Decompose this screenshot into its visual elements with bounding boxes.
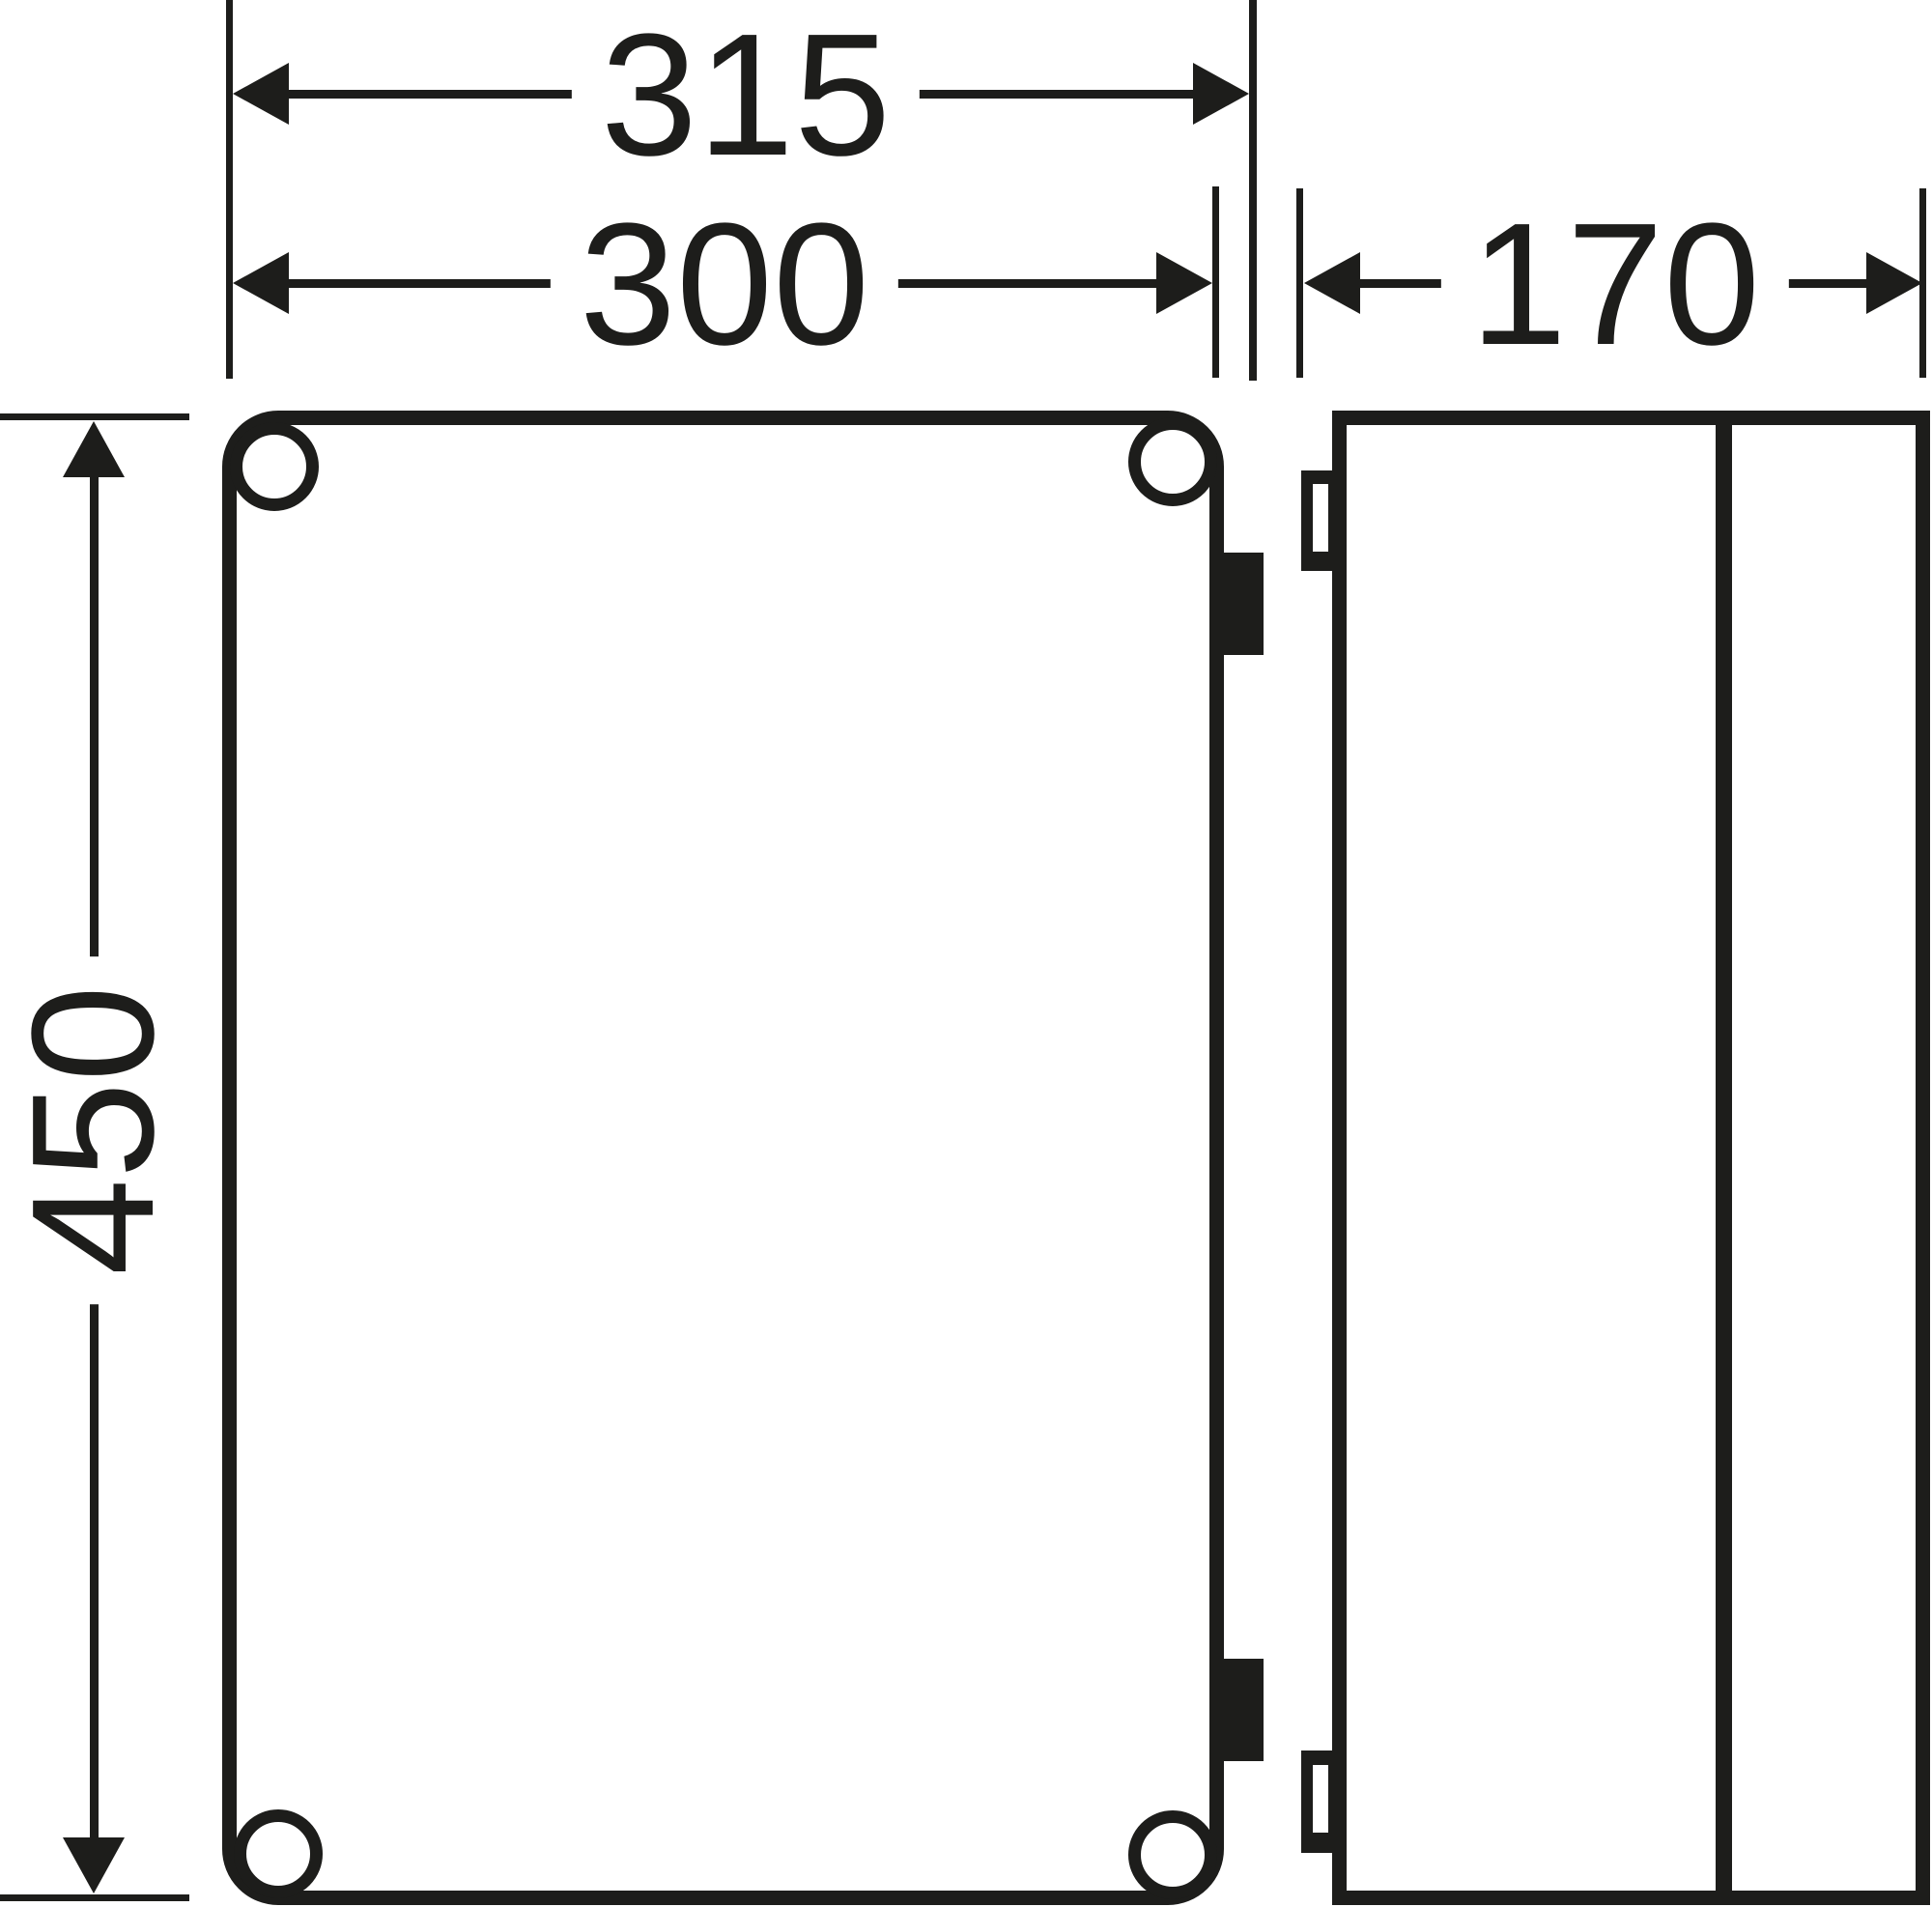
hinge-tab-lower-slot — [1313, 1765, 1328, 1833]
corner-screw-bottom-right — [1128, 1810, 1217, 1899]
extension-line-450-bottom — [0, 1894, 189, 1901]
corner-screw-bottom-left — [234, 1809, 323, 1898]
dimension-300-label: 300 — [551, 198, 898, 372]
dimension-450-label: 450 — [7, 956, 181, 1304]
arrowhead-300-right — [1156, 252, 1212, 314]
extension-line-170-left — [1296, 188, 1303, 378]
dimension-315-label: 315 — [572, 9, 920, 183]
extension-line-width-left — [226, 0, 233, 379]
arrowhead-300-left — [233, 252, 289, 314]
corner-screw-top-left — [230, 422, 319, 511]
extension-line-450-top — [0, 413, 189, 420]
corner-screw-top-right — [1128, 417, 1217, 506]
extension-line-315-right — [1249, 0, 1257, 381]
dimension-170-label: 170 — [1441, 198, 1789, 372]
arrowhead-170-left — [1304, 252, 1360, 314]
extension-line-300-right — [1212, 186, 1219, 378]
side-view-divider-line — [1716, 418, 1732, 1898]
arrowhead-450-up — [63, 421, 125, 477]
front-view-outline — [222, 411, 1224, 1905]
hinge-tab-upper-slot — [1313, 484, 1328, 552]
latch-block-lower — [1211, 1659, 1264, 1761]
arrowhead-450-down — [63, 1837, 125, 1893]
latch-block-upper — [1211, 553, 1264, 655]
arrowhead-315-left — [233, 63, 289, 125]
drawing-canvas: 315 300 170 450 — [0, 0, 1932, 1907]
arrowhead-170-right — [1866, 252, 1922, 314]
side-view-outline — [1332, 411, 1930, 1905]
arrowhead-315-right — [1193, 63, 1249, 125]
